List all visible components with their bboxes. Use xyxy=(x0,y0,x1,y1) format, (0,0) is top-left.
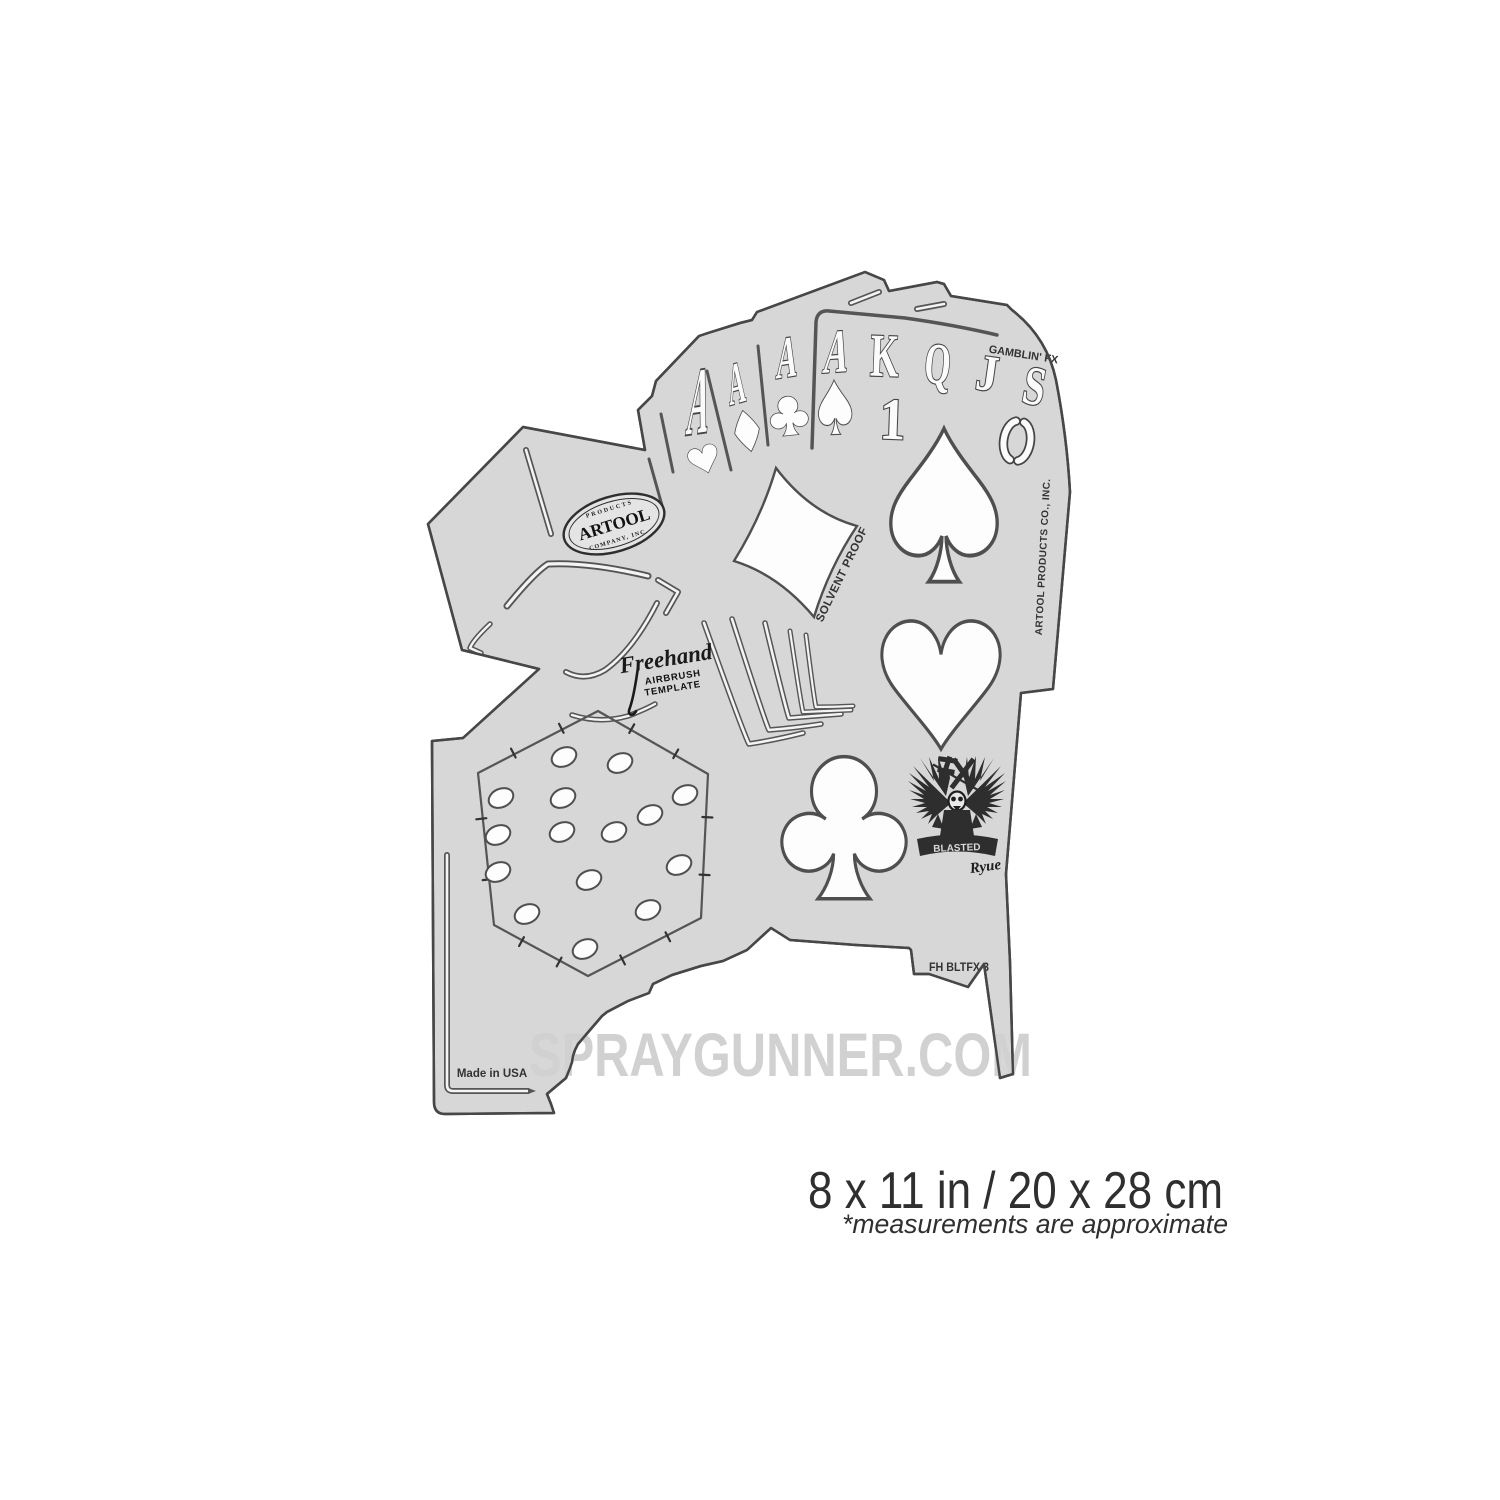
svg-text:*measurements are approximate: *measurements are approximate xyxy=(842,1209,1228,1239)
svg-text:Q: Q xyxy=(922,332,954,398)
svg-text:BLASTED: BLASTED xyxy=(933,842,981,855)
svg-text:SPRAYGUNNER.COM: SPRAYGUNNER.COM xyxy=(529,1021,1032,1089)
svg-text:Made in USA: Made in USA xyxy=(457,1068,527,1080)
svg-text:K: K xyxy=(869,321,900,390)
svg-text:1: 1 xyxy=(879,387,907,454)
svg-text:A: A xyxy=(775,323,799,392)
